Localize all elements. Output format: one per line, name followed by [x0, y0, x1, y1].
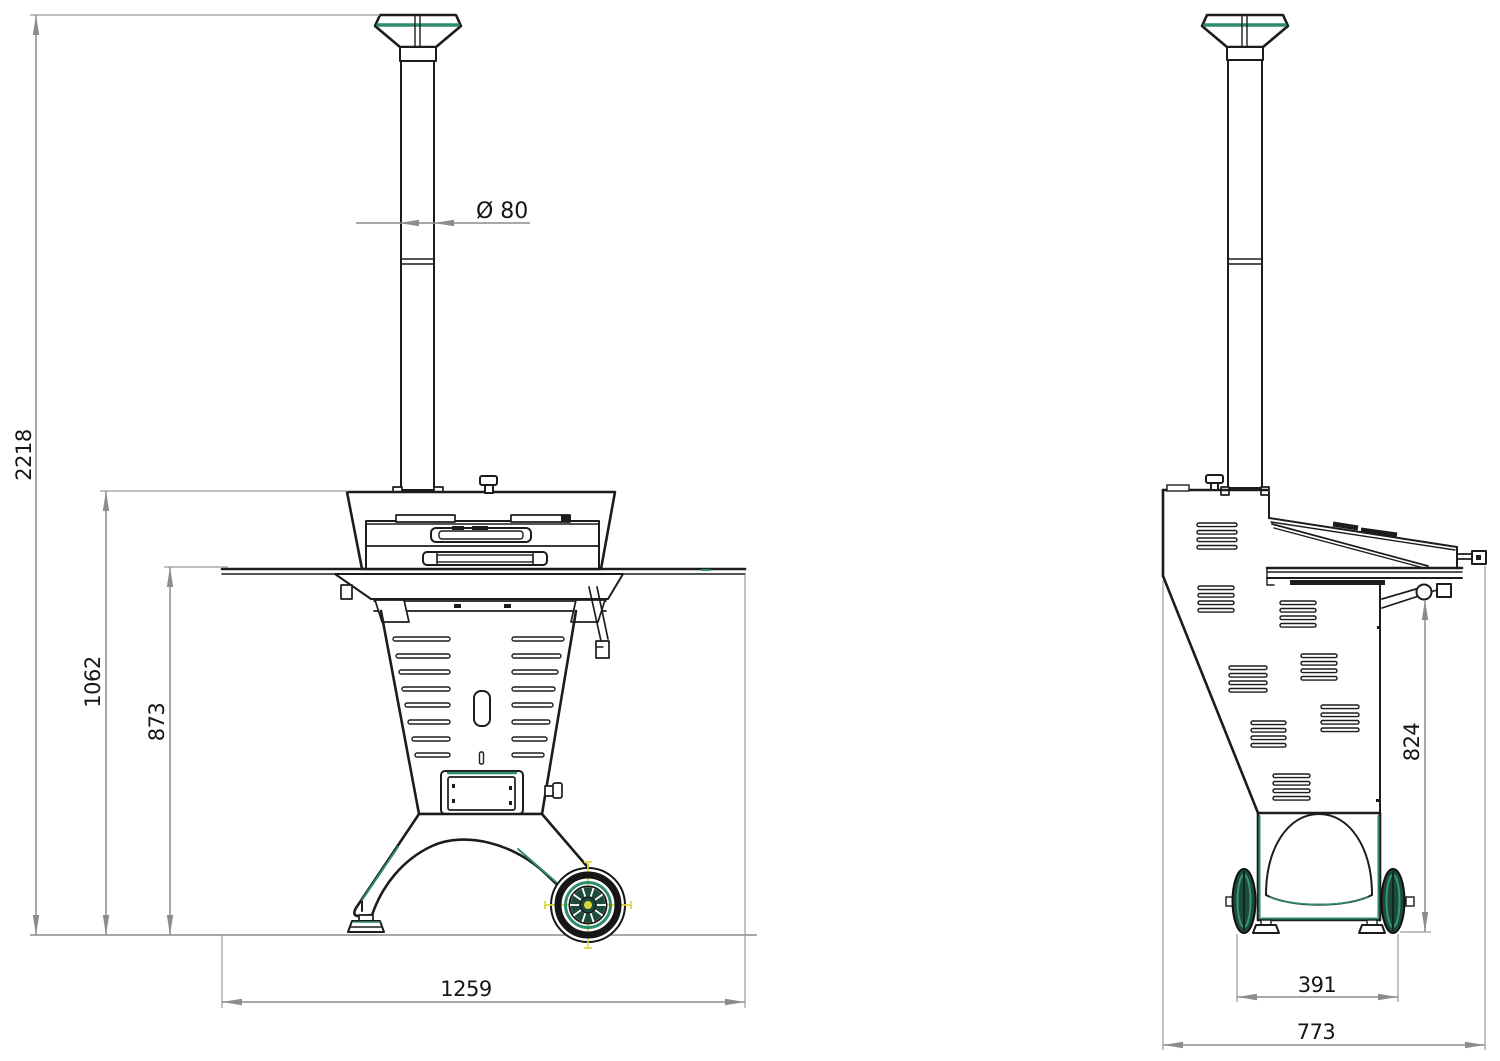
shelf-underside [1382, 584, 1451, 608]
vent-slots-right [512, 637, 564, 757]
hood-knob [480, 476, 497, 493]
lower-door-handle [423, 552, 547, 565]
front-body [381, 611, 576, 815]
handle-rod [1457, 551, 1486, 564]
dim-label-oven-height: 1062 [81, 656, 105, 707]
front-hood [347, 476, 615, 569]
dim-label-surface-height: 824 [1400, 723, 1424, 762]
side-chimney [1202, 15, 1288, 495]
drawing-canvas: Ø 80 [0, 0, 1500, 1061]
pellet-door [441, 771, 523, 814]
dim-total-height: 2218 [12, 15, 380, 935]
dim-table-height: 873 [145, 567, 228, 935]
side-view: 824 391 773 [1163, 15, 1486, 1050]
front-shelf [222, 569, 745, 658]
dim-label-chimney-diameter: Ø 80 [476, 199, 528, 224]
dim-label-wheel-track: 391 [1298, 973, 1337, 997]
front-view: Ø 80 [12, 15, 757, 1008]
side-feet [1253, 920, 1385, 933]
dim-label-total-depth: 773 [1297, 1020, 1336, 1044]
vent-slots-left [393, 637, 450, 757]
dim-wheel-track: 391 [1237, 934, 1398, 1002]
dim-label-table-width: 1259 [440, 977, 491, 1001]
dim-oven-height: 1062 [81, 491, 348, 935]
side-latch [545, 783, 562, 798]
side-vent-clusters [1197, 523, 1359, 800]
upper-door-handle [431, 526, 531, 542]
dim-chimney-diameter: Ø 80 [356, 199, 530, 226]
front-foot [348, 915, 384, 932]
technical-drawing: Ø 80 [0, 0, 1500, 1061]
center-slot [474, 691, 490, 726]
side-base [1226, 813, 1414, 933]
side-hood [1269, 493, 1486, 568]
front-chimney [375, 15, 461, 495]
dim-label-total-height: 2218 [12, 429, 36, 480]
front-legs [348, 814, 631, 948]
dim-label-table-height: 873 [145, 703, 169, 742]
dim-surface-height: 824 [1400, 600, 1431, 932]
